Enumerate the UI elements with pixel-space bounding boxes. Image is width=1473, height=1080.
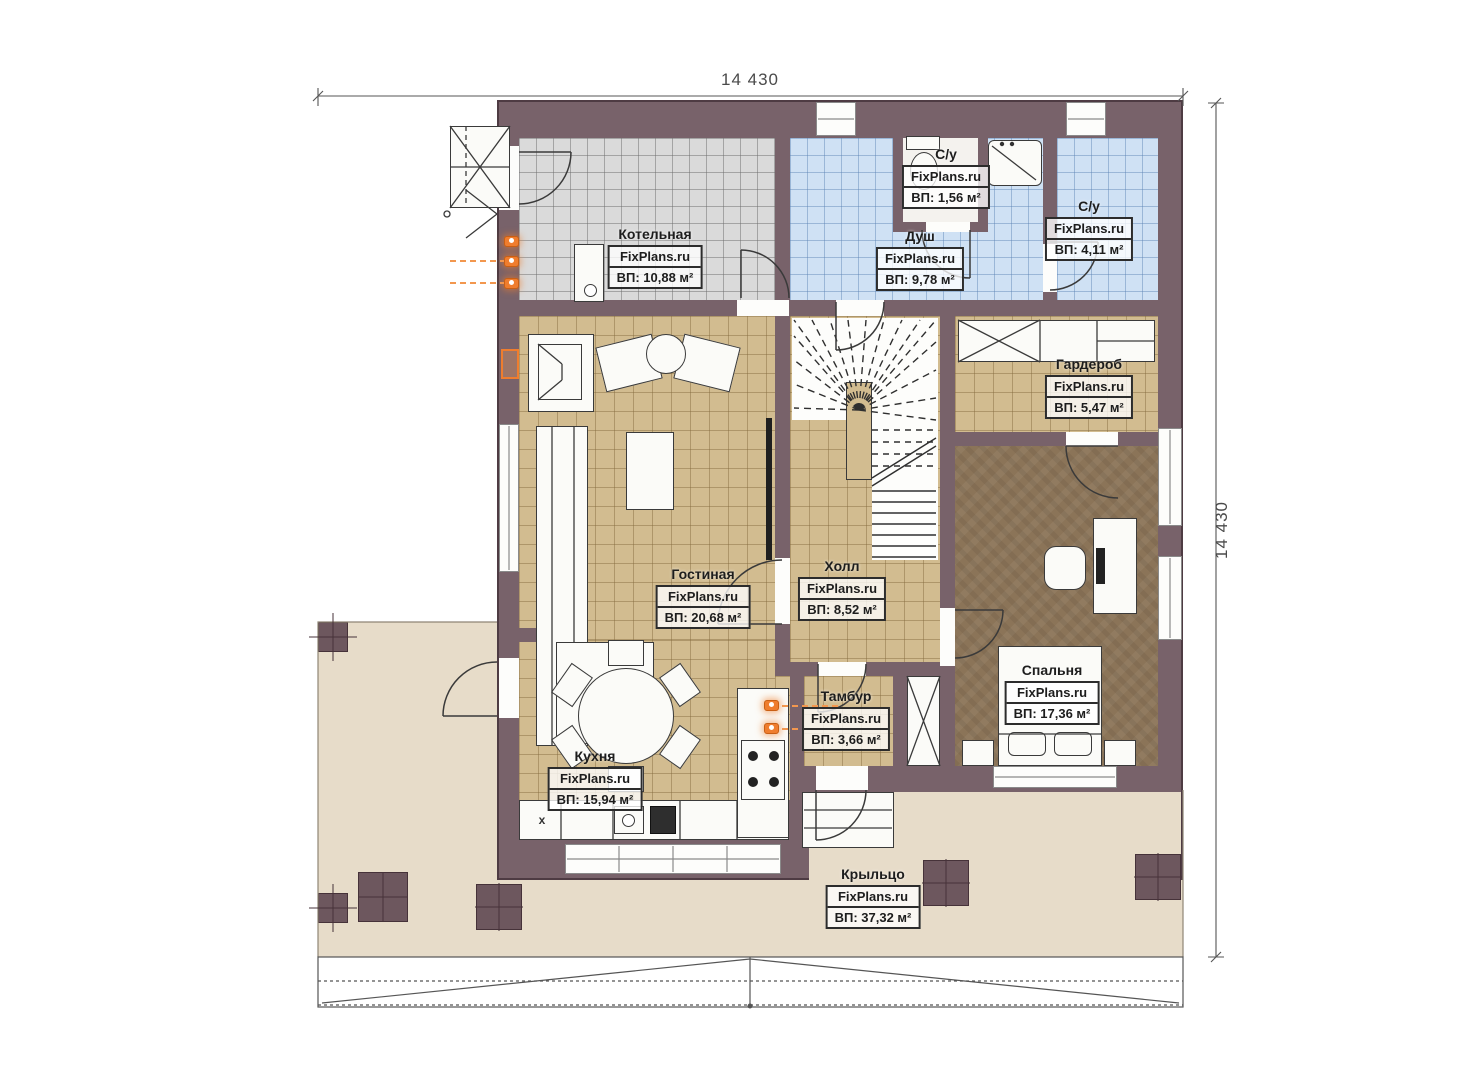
watermark: FixPlans.ru xyxy=(1047,219,1131,240)
door-opening-wardrobe xyxy=(1066,432,1118,446)
room-label-bedroom: Спальня FixPlans.ruВП: 17,36 м² xyxy=(1005,662,1100,725)
hall-closet xyxy=(907,676,940,766)
room-area: ВП: 15,94 м² xyxy=(550,790,641,809)
room-name: Душ xyxy=(876,228,964,244)
watermark: FixPlans.ru xyxy=(610,247,701,268)
door-opening-shower-hall xyxy=(836,300,884,316)
door-opening-kitchen-ext xyxy=(499,658,519,718)
radiator-valve-kitchen-2 xyxy=(764,723,779,734)
chimney-block xyxy=(450,126,510,208)
stove xyxy=(741,740,785,800)
porch-pier-4 xyxy=(476,884,522,930)
shower-tray xyxy=(988,140,1042,186)
porch-steps xyxy=(318,957,1183,1009)
room-area: ВП: 9,78 м² xyxy=(878,270,962,289)
room-area: ВП: 37,32 м² xyxy=(828,908,919,927)
room-name: Холл xyxy=(798,558,886,574)
door-opening-entrance xyxy=(816,766,868,790)
room-label-vestibule: Тамбур FixPlans.ruВП: 3,66 м² xyxy=(802,688,890,751)
radiator-valve-boiler-3 xyxy=(504,278,519,289)
room-label-living: Гостиная FixPlans.ruВП: 20,68 м² xyxy=(656,566,751,629)
door-opening-bedroom xyxy=(940,608,955,666)
room-area: ВП: 3,66 м² xyxy=(804,730,888,749)
watermark: FixPlans.ru xyxy=(658,587,749,608)
room-label-hall: Холл FixPlans.ruВП: 8,52 м² xyxy=(798,558,886,621)
wall-wardrobe-bedroom xyxy=(955,432,1158,446)
room-area: ВП: 10,88 м² xyxy=(610,268,701,287)
bay-window-kitchen xyxy=(565,844,781,874)
door-opening-boiler-living xyxy=(737,300,789,316)
radiator-valve-boiler-1 xyxy=(504,236,519,247)
room-name: Гардероб xyxy=(1045,356,1133,372)
room-name: Спальня xyxy=(1005,662,1100,678)
watermark: FixPlans.ru xyxy=(828,887,919,908)
fireplace-inner xyxy=(538,344,582,400)
room-label-wc: С/у FixPlans.ruВП: 4,11 м² xyxy=(1045,198,1133,261)
room-area: ВП: 5,47 м² xyxy=(1047,398,1131,417)
window-living xyxy=(499,424,519,572)
side-table xyxy=(646,334,686,374)
room-name: Тамбур xyxy=(802,688,890,704)
porch-pier-6 xyxy=(1135,854,1181,900)
coffee-table xyxy=(626,432,674,510)
room-name: Гостиная xyxy=(656,566,751,582)
room-name: Крыльцо xyxy=(826,866,921,882)
watermark: FixPlans.ru xyxy=(904,167,988,188)
room-name: С/у xyxy=(902,146,990,162)
room-label-boiler: Котельная FixPlans.ruВП: 10,88 м² xyxy=(608,226,703,289)
room-label-kitchen: Кухня FixPlans.ruВП: 15,94 м² xyxy=(548,748,643,811)
radiator-valve-boiler-2 xyxy=(504,256,519,267)
window-top-2 xyxy=(1066,102,1106,136)
wall-boiler-shower xyxy=(775,138,790,300)
dining-chair-top xyxy=(608,640,644,666)
stairs-newel xyxy=(846,382,872,480)
watermark: FixPlans.ru xyxy=(878,249,962,270)
window-bedroom-bottom xyxy=(993,766,1117,788)
room-area: ВП: 17,36 м² xyxy=(1007,704,1098,723)
stairs-lower-zone xyxy=(872,420,938,560)
nightstand-left xyxy=(962,740,994,766)
boiler-dial xyxy=(584,284,597,297)
tv-panel xyxy=(766,418,772,560)
dimension-right: 14 430 xyxy=(1212,501,1232,559)
porch-pier-2 xyxy=(318,893,348,923)
watermark: FixPlans.ru xyxy=(550,769,641,790)
window-bedroom-right-2 xyxy=(1158,556,1182,640)
room-area: ВП: 1,56 м² xyxy=(904,188,988,207)
watermark: FixPlans.ru xyxy=(1047,377,1131,398)
nightstand-right xyxy=(1104,740,1136,766)
desk-chair xyxy=(1044,546,1086,590)
porch-pier-1 xyxy=(318,622,348,652)
watermark: FixPlans.ru xyxy=(1007,683,1098,704)
room-label-wardrobe: Гардероб FixPlans.ruВП: 5,47 м² xyxy=(1045,356,1133,419)
wall-hall-bedroom xyxy=(940,316,955,790)
wall-vestibule-right xyxy=(893,662,907,766)
room-area: ВП: 8,52 м² xyxy=(800,600,884,619)
door-opening-living-hall xyxy=(775,558,790,624)
pillow-left xyxy=(1008,732,1046,756)
room-area: ВП: 20,68 м² xyxy=(658,608,749,627)
pillow-right xyxy=(1054,732,1092,756)
dimension-top: 14 430 xyxy=(721,70,779,90)
room-area: ВП: 4,11 м² xyxy=(1047,240,1131,259)
window-bedroom-right-1 xyxy=(1158,428,1182,526)
room-label-shower: Душ FixPlans.ruВП: 9,78 м² xyxy=(876,228,964,291)
monitor xyxy=(1096,548,1105,584)
room-name: С/у xyxy=(1045,198,1133,214)
porch-pier-3 xyxy=(358,872,408,922)
watermark: FixPlans.ru xyxy=(800,579,884,600)
door-opening-vestibule xyxy=(818,662,866,676)
watermark: FixPlans.ru xyxy=(804,709,888,730)
radiator-valve-kitchen-1 xyxy=(764,700,779,711)
room-name: Кухня xyxy=(548,748,643,764)
porch-area-bottom xyxy=(318,880,1183,957)
porch-pier-5 xyxy=(923,860,969,906)
window-top-1 xyxy=(816,102,856,136)
room-label-wc-small: С/у FixPlans.ruВП: 1,56 м² xyxy=(902,146,990,209)
room-label-porch: Крыльцо FixPlans.ruВП: 37,32 м² xyxy=(826,866,921,929)
sink-drain xyxy=(622,814,635,827)
entrance-stoop xyxy=(802,792,894,848)
dish-rack xyxy=(650,806,676,834)
floor-plan: x xyxy=(0,0,1473,1080)
room-name: Котельная xyxy=(608,226,703,242)
